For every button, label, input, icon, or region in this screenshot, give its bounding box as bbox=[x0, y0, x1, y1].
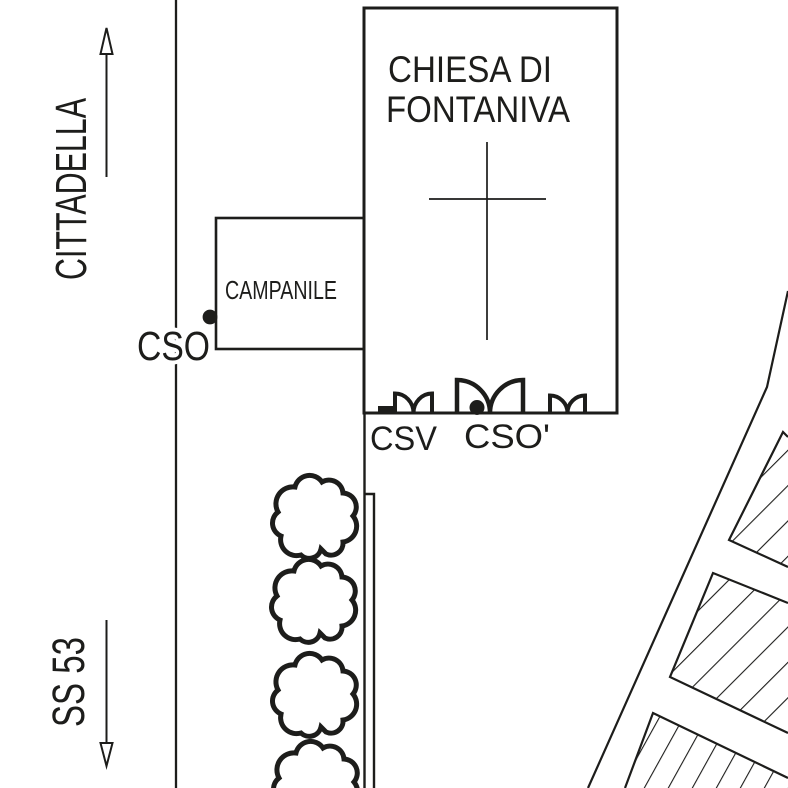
tree-icon bbox=[273, 741, 357, 788]
shrub-icon bbox=[395, 394, 432, 414]
boundary-wall-offset-line bbox=[365, 494, 375, 788]
tree-icon bbox=[271, 559, 355, 642]
csv-marker-rectangle bbox=[378, 406, 395, 413]
shrub-icon bbox=[550, 396, 585, 414]
cso-prime-point-label: CSO' bbox=[464, 418, 550, 456]
north-direction: CITTADELLA bbox=[47, 28, 113, 280]
site-plan-map: CHIESA DI FONTANIVA CAMPANILE CSO CSV CS… bbox=[0, 0, 788, 788]
shrub-icon bbox=[457, 380, 523, 413]
south-arrow-icon bbox=[101, 743, 113, 766]
site-plan: CHIESA DI FONTANIVA CAMPANILE CSO CSV CS… bbox=[0, 0, 788, 788]
cso-point-label: CSO bbox=[137, 323, 210, 369]
road-south-label: SS 53 bbox=[43, 637, 94, 727]
church-name-line2: FONTANIVA bbox=[386, 89, 570, 130]
campanile-label: CAMPANILE bbox=[225, 275, 337, 305]
tree-icon bbox=[272, 475, 356, 558]
csv-point-label: CSV bbox=[370, 420, 437, 458]
church-name-line1: CHIESA DI bbox=[388, 49, 552, 90]
tree-icon bbox=[272, 653, 356, 736]
tree-row bbox=[271, 475, 357, 788]
south-direction: SS 53 bbox=[43, 620, 113, 766]
road-north-label: CITTADELLA bbox=[47, 98, 96, 280]
cross-icon bbox=[429, 142, 546, 340]
north-arrow-icon bbox=[101, 28, 113, 54]
cso-prime-point-marker-icon bbox=[470, 400, 485, 415]
